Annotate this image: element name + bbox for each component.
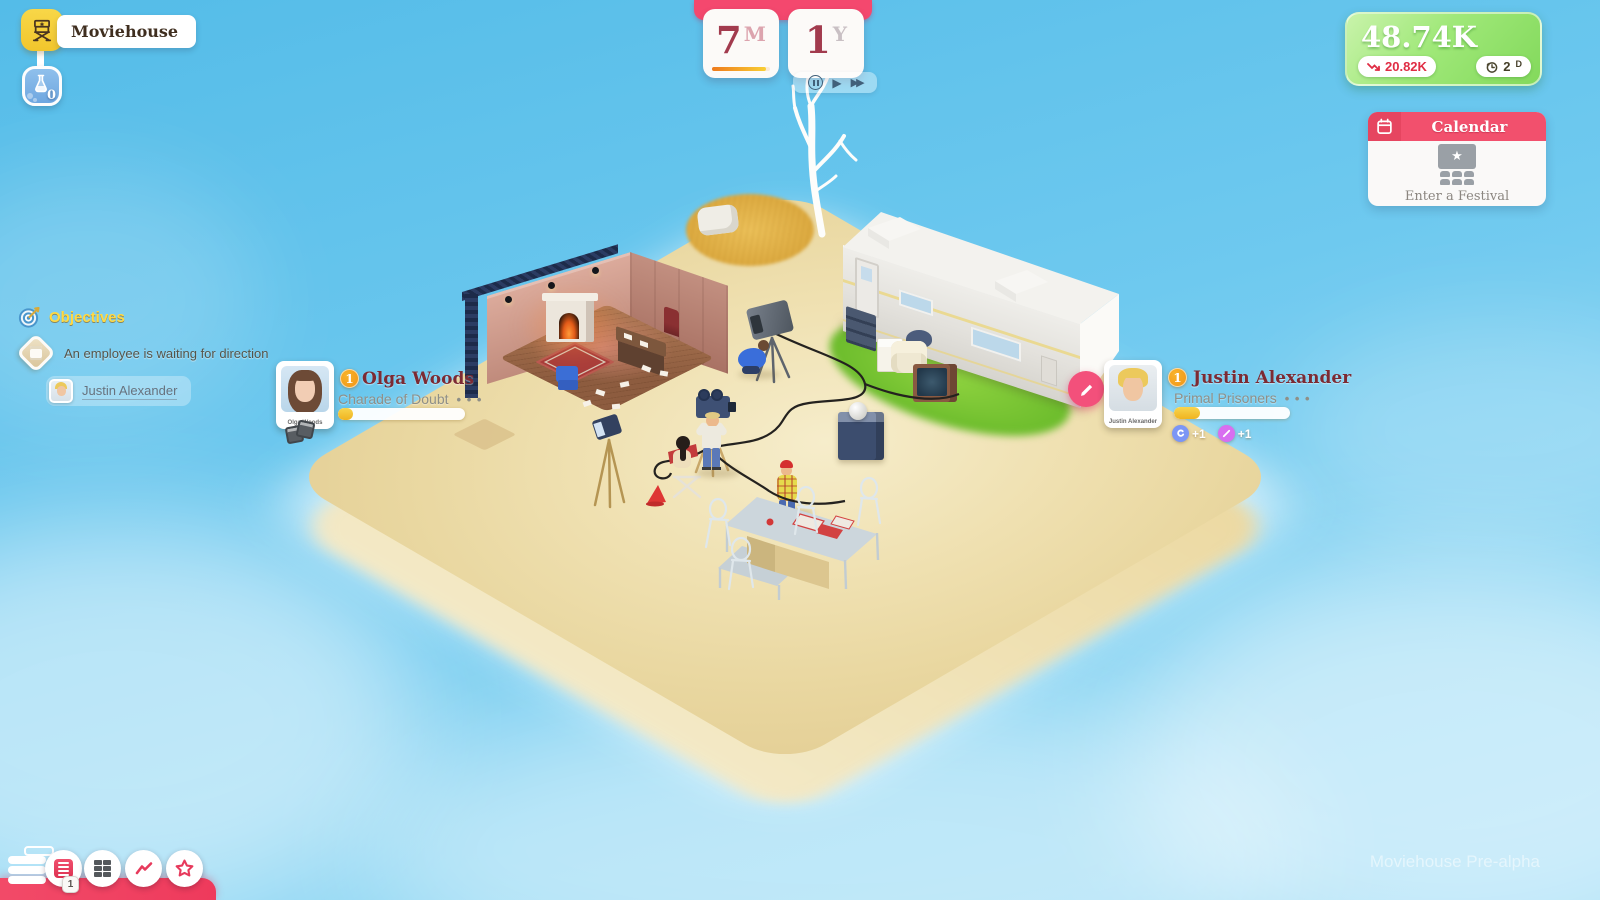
payday-timer-pill: 2 D <box>1476 56 1531 77</box>
trend-down-icon <box>1367 61 1381 73</box>
project-progress-bar <box>1174 407 1290 419</box>
objective-text: An employee is waiting for direction <box>64 346 269 361</box>
grid-icon <box>94 860 112 877</box>
employee-name: Justin Alexander <box>1193 369 1351 388</box>
research-count-badge: 0 <box>47 88 56 103</box>
target-icon <box>18 306 41 329</box>
year-unit: Y <box>833 24 847 44</box>
writing-skill-icon <box>1218 425 1235 442</box>
game-screen: Moviehouse 0 7 M 1 Y ▶ ▶▶ 48.74K <box>0 0 1600 900</box>
festival-audience-icon <box>1440 171 1474 185</box>
toolbar-stats-button[interactable] <box>125 850 162 887</box>
skill-gain-writing: +1 <box>1218 425 1252 442</box>
clapperboard-icon <box>284 419 324 449</box>
pencil-icon <box>1078 381 1095 398</box>
activity-dots: • • • <box>457 392 483 407</box>
employee-portrait-card[interactable]: Justin Alexander <box>1104 360 1162 428</box>
project-title: Primal Prisoners <box>1174 390 1277 406</box>
calendar-panel: Calendar ★ Enter a Festival <box>1368 112 1546 206</box>
director-chair-icon <box>30 18 54 42</box>
pause-button[interactable] <box>808 75 823 90</box>
calendar-icon-cell[interactable] <box>1368 112 1401 141</box>
toolbar-schedule-button[interactable] <box>84 850 121 887</box>
studio-name-plate[interactable]: Moviehouse <box>57 15 196 48</box>
month-value: 7 <box>716 22 742 59</box>
star-icon <box>174 858 195 879</box>
employee-plate-olga[interactable]: Olga Woods 1 Olga Woods Charade of Doubt… <box>276 361 486 457</box>
timer-clock-icon <box>1485 60 1499 74</box>
activity-dots: • • • <box>1285 391 1311 406</box>
year-value: 1 <box>805 22 831 59</box>
festival-label: Enter a Festival <box>1405 189 1509 204</box>
finance-panel[interactable]: 48.74K 20.82K 2 D <box>1345 12 1542 86</box>
enter-festival-button[interactable]: ★ Enter a Festival <box>1368 141 1546 206</box>
play-button[interactable]: ▶ <box>832 76 841 90</box>
time-controls: ▶ ▶▶ <box>793 72 877 93</box>
objectives-title: Objectives <box>49 309 125 326</box>
objectives-panel: Objectives An employee is waiting for di… <box>18 306 318 408</box>
tech-skill-icon <box>1172 425 1189 442</box>
spend-value: 20.82K <box>1385 59 1427 74</box>
calendar-icon <box>1376 118 1393 135</box>
megaphone-prop <box>646 485 666 507</box>
month-card[interactable]: 7 M <box>703 9 779 78</box>
timer-unit: D <box>1516 59 1523 69</box>
research-button[interactable]: 0 <box>22 66 62 106</box>
month-unit: M <box>744 24 766 44</box>
employee-name: Olga Woods <box>362 370 474 389</box>
toolbar-favorites-button[interactable] <box>166 850 203 887</box>
notes-count-badge: 1 <box>62 876 79 893</box>
scene-overlay <box>0 0 1600 900</box>
level-badge: 1 <box>340 369 359 388</box>
project-progress-bar <box>338 408 465 420</box>
spend-trend-pill: 20.82K <box>1358 56 1436 77</box>
employee-mini-avatar <box>49 379 73 403</box>
build-watermark: Moviehouse Pre-alpha <box>1370 852 1540 872</box>
portrait-name-label: Justin Alexander <box>1104 419 1162 425</box>
scattered-papers <box>583 365 669 410</box>
month-progress-bar <box>712 67 770 71</box>
project-title: Charade of Doubt <box>338 391 449 407</box>
objective-clipboard-icon <box>16 333 56 373</box>
year-card[interactable]: 1 Y <box>788 9 864 78</box>
skill-gain-tech: +1 <box>1172 425 1206 442</box>
employee-portrait <box>1109 365 1157 411</box>
festival-screen-icon: ★ <box>1438 144 1476 169</box>
employee-link-name: Justin Alexander <box>82 383 177 400</box>
objective-employee-link[interactable]: Justin Alexander <box>46 376 191 406</box>
objective-item[interactable]: An employee is waiting for direction <box>18 339 318 367</box>
line-chart-icon <box>134 859 154 879</box>
star-glyph: ★ <box>1451 148 1463 164</box>
studio-name: Moviehouse <box>71 22 178 41</box>
skill-gain-badges: +1 +1 <box>1172 425 1251 442</box>
level-badge: 1 <box>1168 368 1187 387</box>
fast-forward-button[interactable]: ▶▶ <box>851 76 862 89</box>
employee-plate-justin[interactable]: Justin Alexander 1 Justin Alexander Prim… <box>1104 360 1314 456</box>
write-script-button[interactable] <box>1068 371 1104 407</box>
employee-portrait <box>281 366 329 412</box>
dead-tree-icon <box>793 73 856 234</box>
balance-value: 48.74K <box>1361 20 1477 54</box>
calendar-title: Calendar <box>1401 112 1546 141</box>
timer-value: 2 <box>1503 59 1510 74</box>
calendar-header: Calendar <box>1368 112 1546 141</box>
